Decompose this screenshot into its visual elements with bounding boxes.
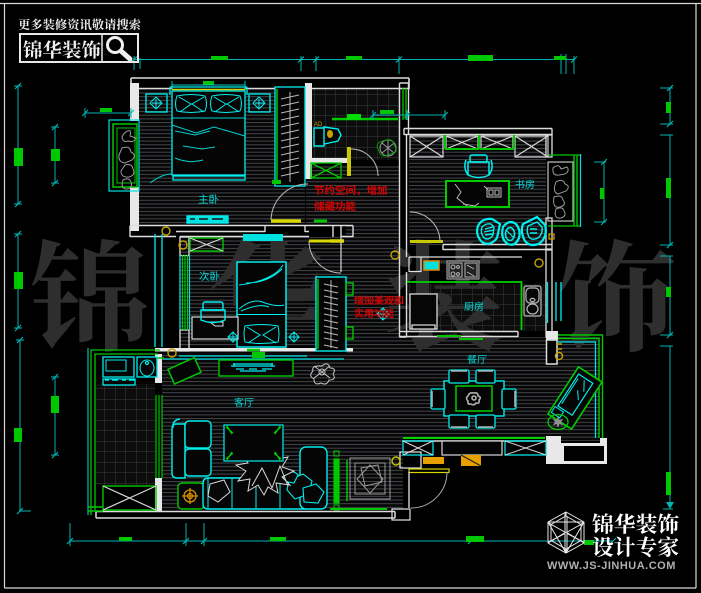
svg-text:WWW.JS-JINHUA.COM: WWW.JS-JINHUA.COM [547, 560, 676, 572]
svg-text:AD: AD [314, 122, 323, 128]
